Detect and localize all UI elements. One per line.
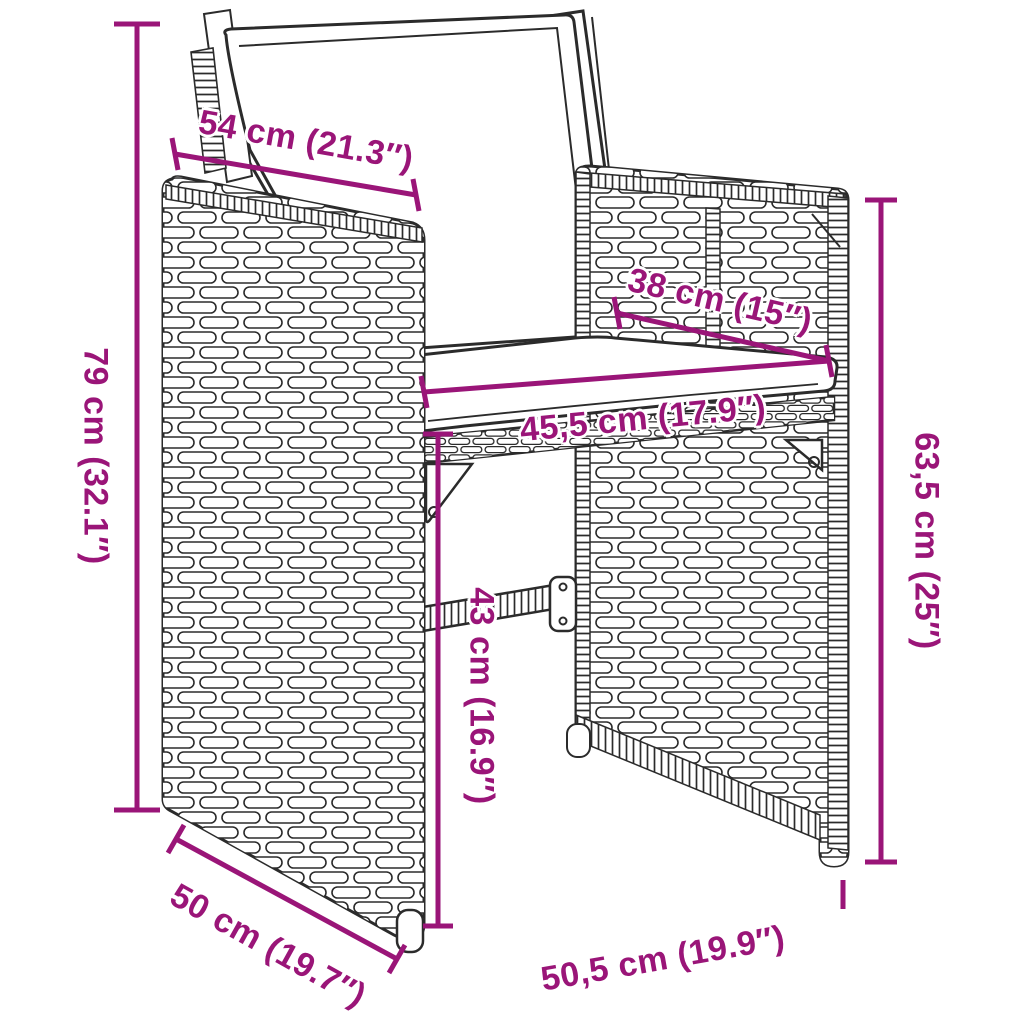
dimension-diagram: 54 cm (21.3″) 38 cm (15″) 79 cm (32.1″) … — [0, 0, 1024, 1024]
dim-line-armrest-height — [865, 200, 897, 862]
crossbar — [423, 577, 576, 631]
chair-illustration — [0, 0, 1024, 1024]
left-arm-panel — [163, 177, 424, 952]
dim-line-total-height — [114, 24, 160, 810]
rear-panel — [567, 166, 848, 866]
